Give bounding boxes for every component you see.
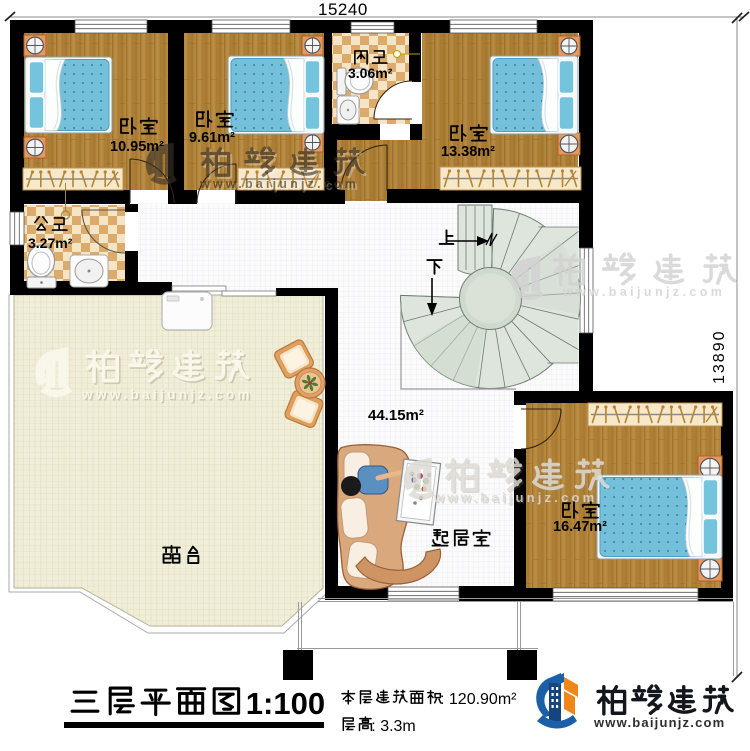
- svg-text:44.15m²: 44.15m²: [368, 407, 424, 424]
- svg-text:13.38m²: 13.38m²: [441, 144, 495, 160]
- svg-text:www.baijunjz.com: www.baijunjz.com: [433, 490, 597, 505]
- svg-text:www.baijunjz.com: www.baijunjz.com: [199, 177, 359, 191]
- svg-text:9.61m²: 9.61m²: [189, 130, 235, 146]
- svg-text:: 3.3m: : 3.3m: [371, 718, 415, 735]
- svg-text:10.95m²: 10.95m²: [110, 139, 164, 155]
- svg-text:3.06m²: 3.06m²: [348, 65, 393, 81]
- svg-text:1:100: 1:100: [246, 686, 325, 721]
- svg-text:www.baijunjz.com: www.baijunjz.com: [81, 387, 253, 402]
- svg-text:: 120.90m²: : 120.90m²: [440, 691, 517, 708]
- svg-text:3.27m²: 3.27m²: [28, 235, 73, 251]
- svg-text:www.baijunjz.com: www.baijunjz.com: [593, 715, 725, 730]
- svg-text:16.47m²: 16.47m²: [553, 519, 607, 535]
- svg-text:www.baijunjz.com: www.baijunjz.com: [562, 285, 725, 299]
- svg-text:15240: 15240: [318, 0, 368, 19]
- svg-text:13890: 13890: [711, 330, 728, 385]
